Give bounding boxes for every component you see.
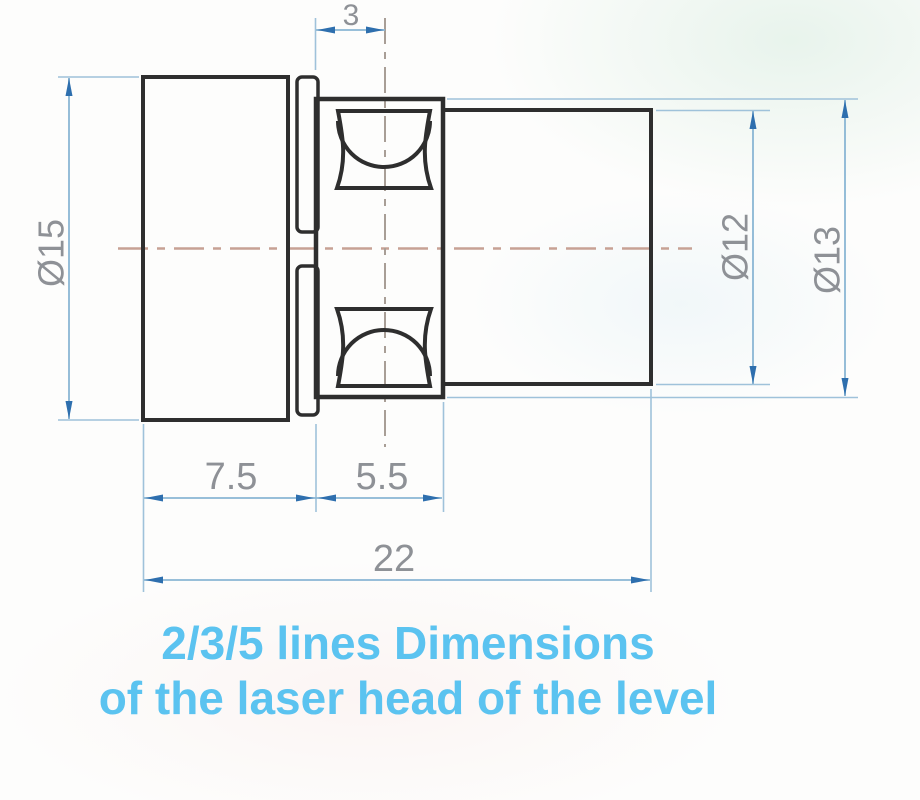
dim-label-dia15: Ø15: [31, 219, 72, 287]
arrow-22-right: [631, 577, 649, 584]
arrow-dia12-bottom: [750, 366, 757, 384]
output-cylinder-outline: [443, 110, 651, 384]
dim-label-3: 3: [343, 0, 360, 32]
arrow-5-5-right: [423, 495, 441, 502]
dimension-lens-offset: 3: [316, 0, 385, 34]
dimension-total-length: 22: [144, 538, 650, 584]
arrow-7-5-left: [145, 495, 163, 502]
dim-label-dia13: Ø13: [807, 226, 848, 294]
arrow-dia15-top: [66, 78, 73, 96]
caption-line2: of the laser head of the level: [99, 672, 718, 724]
dimension-dia15: Ø15: [31, 78, 73, 419]
arrow-dia15-bottom: [66, 401, 73, 419]
dim-label-5-5: 5.5: [356, 456, 409, 498]
dimension-dia12: Ø12: [715, 111, 757, 384]
arrow-dia13-top: [842, 100, 849, 118]
drawing-svg: 3 Ø15 Ø12 Ø13 7.5: [0, 0, 920, 800]
dimension-dia13: Ø13: [807, 100, 849, 396]
caption: 2/3/5 lines Dimensions of the laser head…: [99, 617, 718, 724]
arrow-22-left: [145, 577, 163, 584]
caption-line1: 2/3/5 lines Dimensions: [161, 617, 654, 669]
laser-head-technical-drawing: 3 Ø15 Ø12 Ø13 7.5: [0, 0, 920, 800]
dim-label-dia12: Ø12: [715, 213, 756, 281]
extension-lines: [58, 18, 858, 592]
arrow-dia12-top: [750, 111, 757, 129]
dim-label-7-5: 7.5: [205, 456, 258, 498]
arrow-7-5-right: [296, 495, 314, 502]
arrow-dia13-bottom: [842, 378, 849, 396]
dimension-housing-length: 5.5: [318, 456, 441, 502]
dim-label-22: 22: [373, 538, 415, 580]
arrow-3-left: [317, 27, 335, 34]
arrow-5-5-left: [318, 495, 336, 502]
arrow-3-right: [366, 27, 384, 34]
